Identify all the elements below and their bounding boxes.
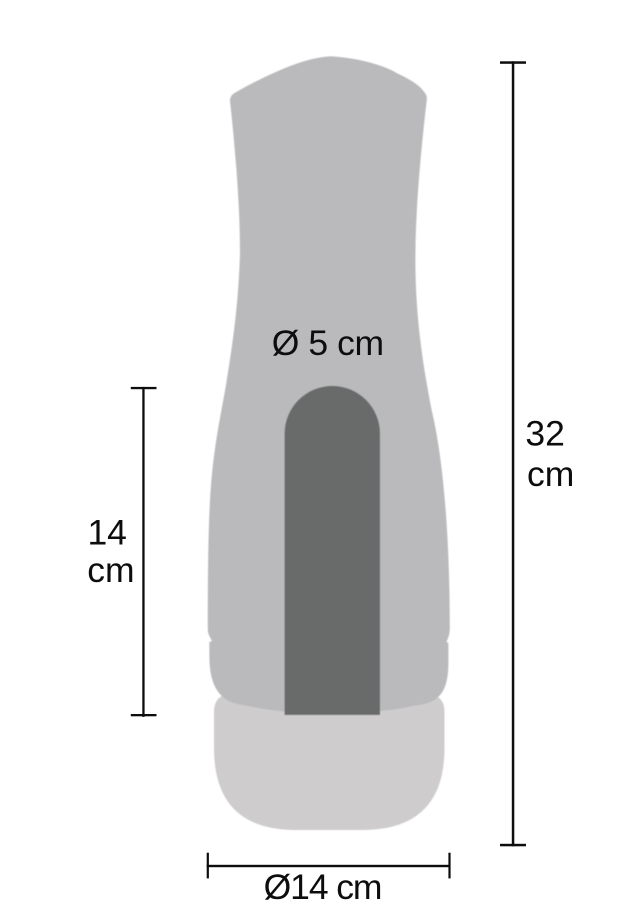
svg-text:Ø 5 cm: Ø 5 cm xyxy=(272,323,384,363)
svg-text:14: 14 xyxy=(87,512,127,552)
svg-text:cm: cm xyxy=(87,550,134,590)
svg-text:32: 32 xyxy=(525,414,565,454)
svg-text:cm: cm xyxy=(527,454,574,494)
svg-text:Ø14 cm: Ø14 cm xyxy=(264,867,382,907)
